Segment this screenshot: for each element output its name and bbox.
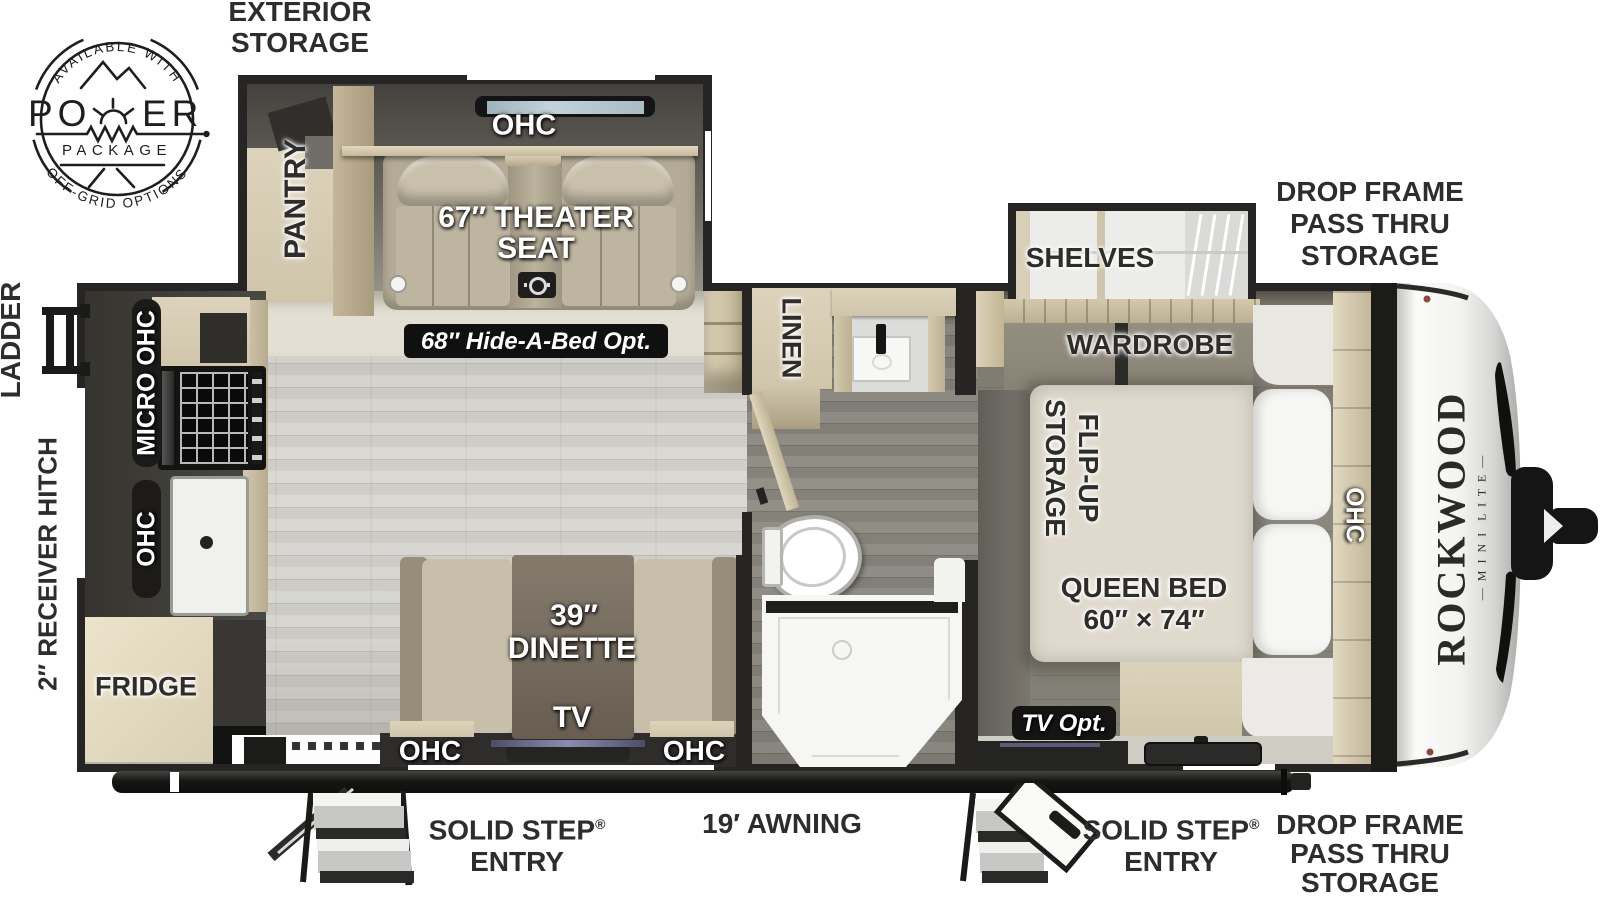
svg-text:OFF-GRID OPTIONS: OFF-GRID OPTIONS <box>43 165 190 212</box>
svg-text:PO: PO <box>30 93 91 134</box>
svg-text:ER: ER <box>142 93 203 134</box>
svg-text:PACKAGE: PACKAGE <box>62 142 172 159</box>
